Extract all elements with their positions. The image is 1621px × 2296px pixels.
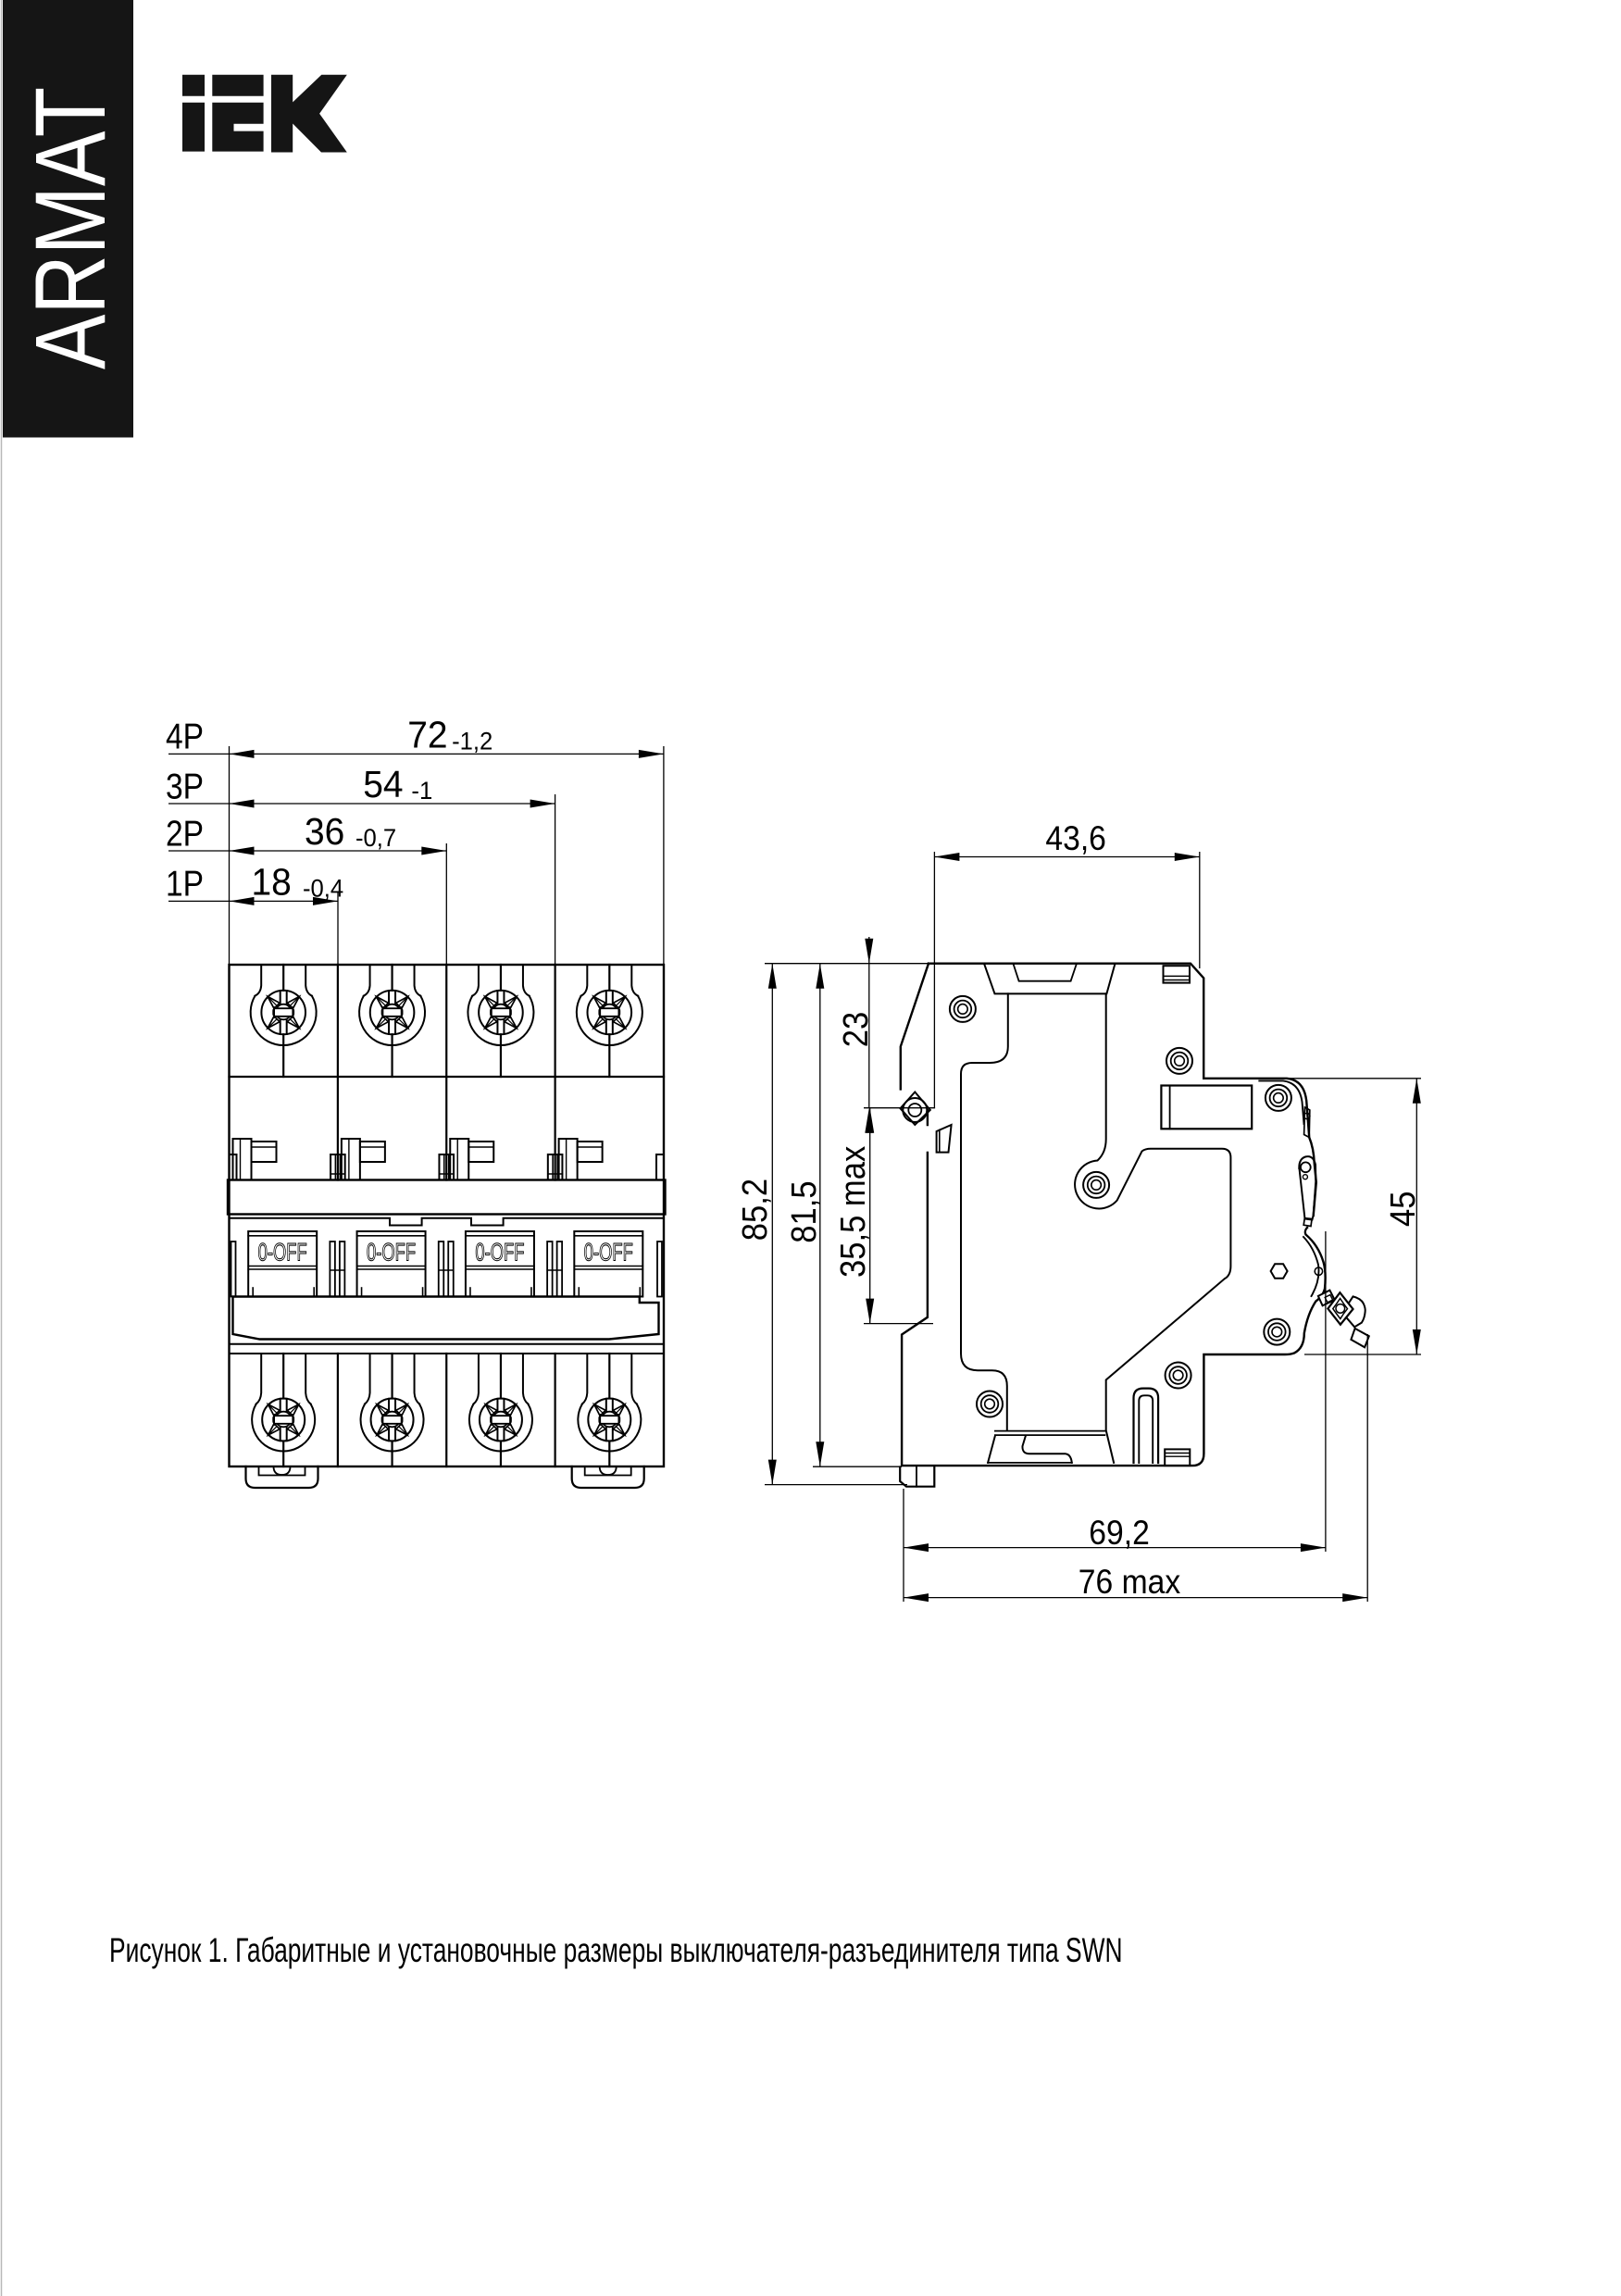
svg-text:69,2: 69,2 [1089, 1514, 1150, 1552]
svg-text:0-OFF: 0-OFF [475, 1238, 524, 1266]
svg-text:Рисунок 1. Габаритные и устано: Рисунок 1. Габаритные и установочные раз… [109, 1931, 1123, 1969]
svg-text:45: 45 [1382, 1192, 1422, 1227]
svg-text:-1: -1 [411, 776, 432, 805]
svg-text:76 max: 76 max [1079, 1564, 1181, 1602]
svg-text:0-OFF: 0-OFF [584, 1238, 633, 1266]
svg-text:72: 72 [407, 715, 447, 756]
svg-text:35,5 max: 35,5 max [832, 1146, 872, 1278]
svg-text:36: 36 [305, 811, 344, 853]
svg-text:54: 54 [363, 764, 403, 805]
svg-text:ARMAT: ARMAT [14, 87, 126, 369]
svg-text:1P: 1P [166, 863, 204, 904]
svg-text:4P: 4P [166, 716, 204, 756]
svg-text:23: 23 [835, 1012, 875, 1047]
svg-text:2P: 2P [166, 813, 204, 854]
svg-text:-1,2: -1,2 [452, 727, 493, 755]
svg-text:81,5: 81,5 [783, 1180, 823, 1242]
svg-text:85,2: 85,2 [734, 1179, 774, 1241]
svg-text:0-OFF: 0-OFF [367, 1238, 416, 1266]
svg-text:43,6: 43,6 [1045, 819, 1106, 857]
svg-text:-0,7: -0,7 [355, 823, 396, 852]
svg-text:18: 18 [252, 862, 292, 904]
svg-text:3P: 3P [166, 766, 204, 806]
svg-text:-0,4: -0,4 [303, 874, 343, 903]
svg-text:0-OFF: 0-OFF [258, 1238, 307, 1266]
